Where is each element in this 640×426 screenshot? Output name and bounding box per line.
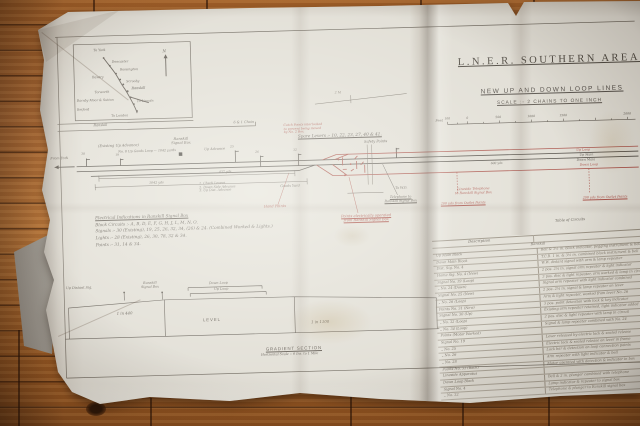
gradient-up-distant: Up Distant Sig. xyxy=(66,286,92,291)
up-main-line-label: Up Main xyxy=(579,153,593,157)
crease-vertical xyxy=(510,0,532,235)
down-loop-line-label: Down Loop xyxy=(580,163,598,167)
from-york-label: From York xyxy=(50,157,68,161)
signal-box-line2: Signal Box xyxy=(171,141,191,146)
map-scale: 6 & 1 Chain xyxy=(233,121,254,125)
lineside-telephone-line2: to Ranskill Signal Box xyxy=(455,190,492,195)
signal-number: 26 xyxy=(255,151,259,154)
map-station: To London xyxy=(111,114,128,118)
map-station: Scrooby xyxy=(126,80,139,84)
telephone-note: Telephone to Ranskill Signal Box xyxy=(378,195,424,204)
gradient-up-loop: Up Loop xyxy=(214,288,228,292)
table-of-circuits: Table of Circuits Description Ranskill U… xyxy=(432,221,640,373)
map-station: To Lincoln xyxy=(137,100,154,104)
scale-bar-tick: 100 xyxy=(444,117,450,121)
to-wo-label: To W.O. xyxy=(395,187,407,191)
lever-list: 1. Check Levers 2. Down Side Advance 3. … xyxy=(199,181,236,193)
scale-bar-tick: 0 xyxy=(466,117,468,120)
gradient-down-loop: Down Loop xyxy=(209,281,228,285)
map-station: Doncaster xyxy=(112,60,129,64)
indications-block: Electrical Indications in Ranskill Signa… xyxy=(95,210,273,249)
distance-437: 437 yds xyxy=(219,170,232,174)
signal-number: 30 xyxy=(81,153,85,156)
paper-shadow: L.N.E.R. Southern Area. Ranskill. New Up… xyxy=(0,0,640,426)
table-rows: Up Main Block Bell & 3½ in. block indica… xyxy=(433,242,640,401)
scale-bar-unit: Feet xyxy=(435,120,443,124)
hand-points-label: Hand Points xyxy=(264,204,286,209)
signal-number: 32 xyxy=(293,149,297,152)
telephone-line2: Ranskill Signal Box xyxy=(384,198,417,203)
drawing-sheet: L.N.E.R. Southern Area. Ranskill. New Up… xyxy=(0,0,640,426)
mile-mark-label: 2 M xyxy=(335,91,341,95)
signal-number: 19 xyxy=(115,154,119,157)
signal-number: 25 xyxy=(230,145,234,148)
up-advance-label: Up Advance xyxy=(204,148,225,152)
catch-note-line3: by No. 2 Box xyxy=(284,130,304,135)
gradient-signal-box: Ranskill Signal Box xyxy=(132,281,168,290)
map-caption: Ranskill xyxy=(93,124,107,128)
gradient-right-grade: 1 in 1100 xyxy=(311,320,329,325)
up-loop-line-label: Up Loop xyxy=(576,148,590,152)
catch-points-note: Catch Points interlocked to prevent bein… xyxy=(284,123,323,135)
lineside-telephone-note: Lineside Telephone to Ranskill Signal Bo… xyxy=(447,187,499,196)
down-main-line-label: Down Main xyxy=(577,158,596,162)
gradient-left-grade: 1 in 440 xyxy=(117,311,133,316)
scale-bar-tick: 500 xyxy=(495,116,501,120)
indications-line4: Lights :- 28 (Existing), 26, 30, 78, 32 … xyxy=(96,233,187,241)
scale-bar-tick: 1500 xyxy=(559,114,567,118)
distance-600: 600 yds xyxy=(491,161,503,165)
photo-of-railway-drawing: L.N.E.R. Southern Area. Ranskill. New Up… xyxy=(0,0,640,426)
signal-box-label: Ranskill Signal Box xyxy=(163,136,199,145)
distance-1042: 1042 yds xyxy=(149,181,164,185)
map-station: Retford xyxy=(77,108,89,112)
indications-line5: Points :- 31, 14 & 34. xyxy=(96,241,141,247)
safety-points-label: Safety Points xyxy=(364,139,387,144)
drawing-content: L.N.E.R. Southern Area. Ranskill. New Up… xyxy=(0,0,640,426)
north-arrow-label: N xyxy=(162,49,166,54)
lever-list-3: 3. Up Dist. Advance xyxy=(199,188,231,193)
gradient-box-line2: Signal Box xyxy=(141,284,159,288)
map-station: To York xyxy=(93,49,105,53)
map-station: Rossington xyxy=(120,68,138,72)
scale-bar-tick: 2000 xyxy=(623,112,631,116)
table-header-description: Description xyxy=(468,239,491,245)
goods-yard-label: Goods Yard xyxy=(280,185,300,189)
gradient-level: Level xyxy=(203,318,221,323)
map-station: Torworth xyxy=(95,91,110,95)
map-station-ranskill: Ranskill xyxy=(131,87,145,91)
